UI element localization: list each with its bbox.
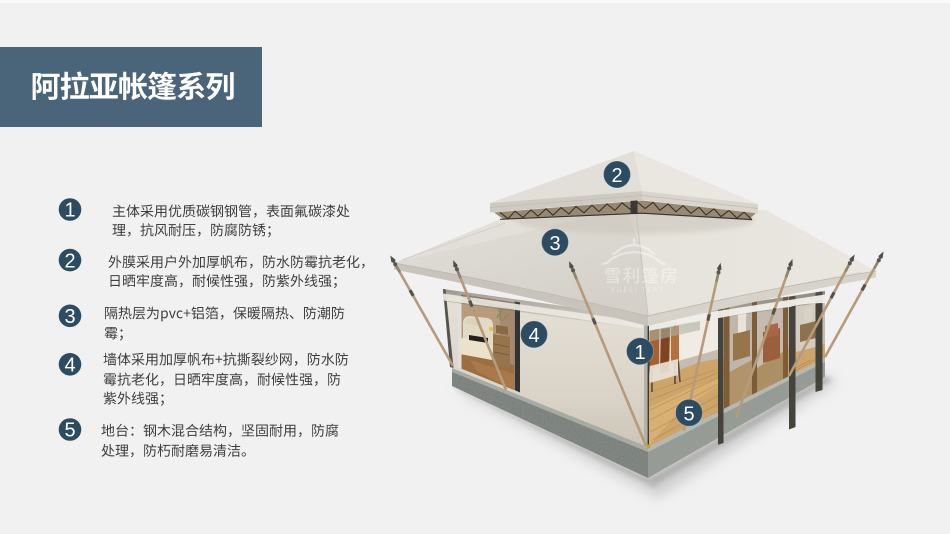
svg-text:4: 4 [528, 325, 539, 347]
svg-text:5: 5 [64, 420, 75, 442]
svg-text:3: 3 [549, 233, 560, 255]
svg-text:3: 3 [64, 306, 75, 328]
svg-text:4: 4 [64, 355, 75, 377]
svg-text:5: 5 [683, 403, 694, 425]
svg-text:1: 1 [634, 342, 645, 364]
svg-text:2: 2 [611, 165, 622, 187]
svg-text:2: 2 [64, 250, 75, 272]
svg-text:1: 1 [64, 200, 75, 222]
